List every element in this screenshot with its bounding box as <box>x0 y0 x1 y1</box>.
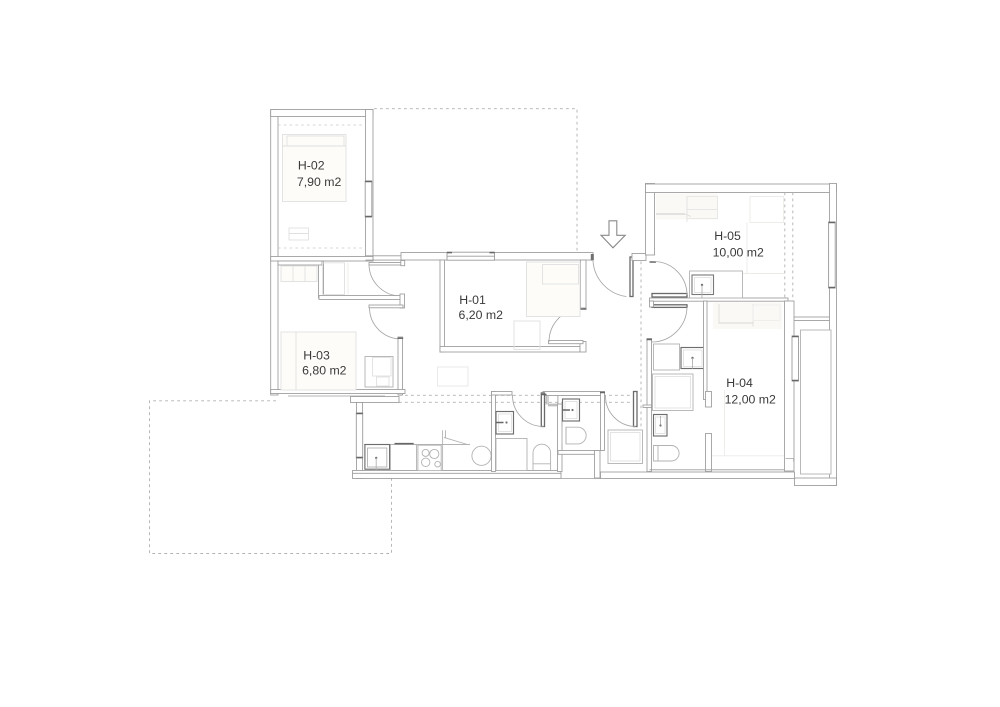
svg-text:6,20 m2: 6,20 m2 <box>459 308 504 322</box>
svg-text:H-03: H-03 <box>303 348 330 362</box>
svg-text:6,80 m2: 6,80 m2 <box>302 364 347 378</box>
svg-text:10,00 m2: 10,00 m2 <box>713 245 764 259</box>
svg-text:7,90 m2: 7,90 m2 <box>297 175 342 189</box>
svg-text:H-01: H-01 <box>459 293 486 307</box>
svg-text:H-02: H-02 <box>298 158 325 172</box>
svg-text:H-04: H-04 <box>726 376 753 390</box>
svg-text:12,00 m2: 12,00 m2 <box>725 392 776 406</box>
svg-text:H-05: H-05 <box>714 229 741 243</box>
